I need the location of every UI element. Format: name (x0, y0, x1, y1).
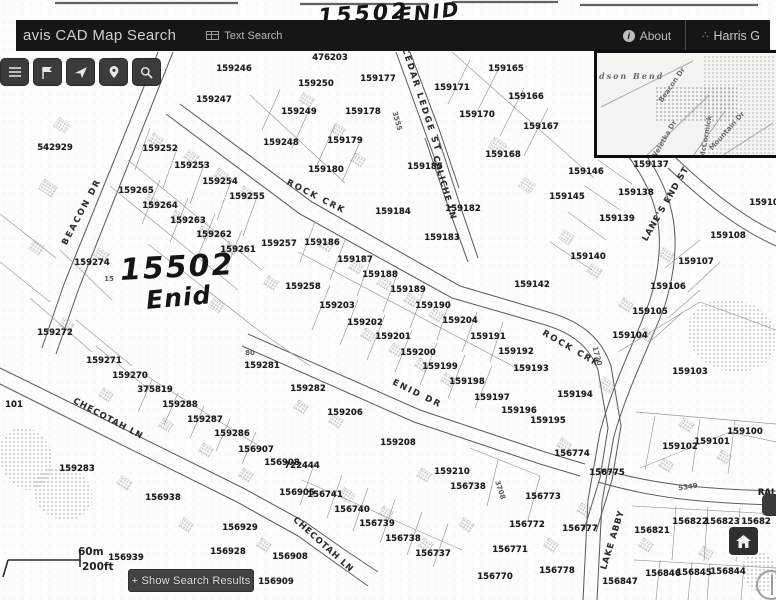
show-search-results-button[interactable]: + Show Search Results (128, 569, 254, 592)
scale-bar (0, 0, 776, 600)
map-app-screenshot: 15502 ENID (0, 0, 776, 600)
edge-partial-button[interactable] (762, 494, 776, 516)
home-extent-button[interactable] (729, 527, 758, 555)
home-icon (735, 534, 752, 549)
scale-imperial-label: 200ft (82, 561, 114, 573)
scale-metric-label: 60m (78, 546, 104, 558)
